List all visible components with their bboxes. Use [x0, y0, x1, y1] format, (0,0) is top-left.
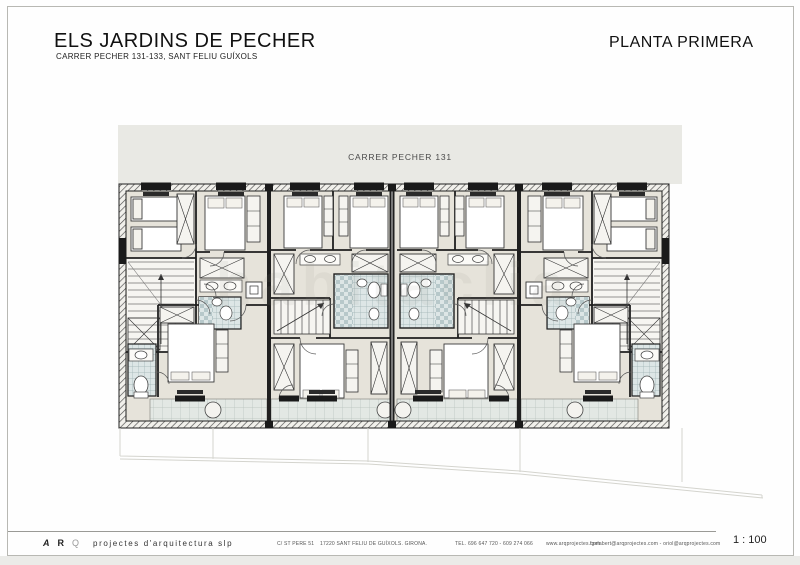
sheet-border [7, 6, 794, 556]
sheet-edge-shadow [0, 556, 800, 565]
drawing-sheet: CARRER PECHER 131 [0, 0, 800, 565]
